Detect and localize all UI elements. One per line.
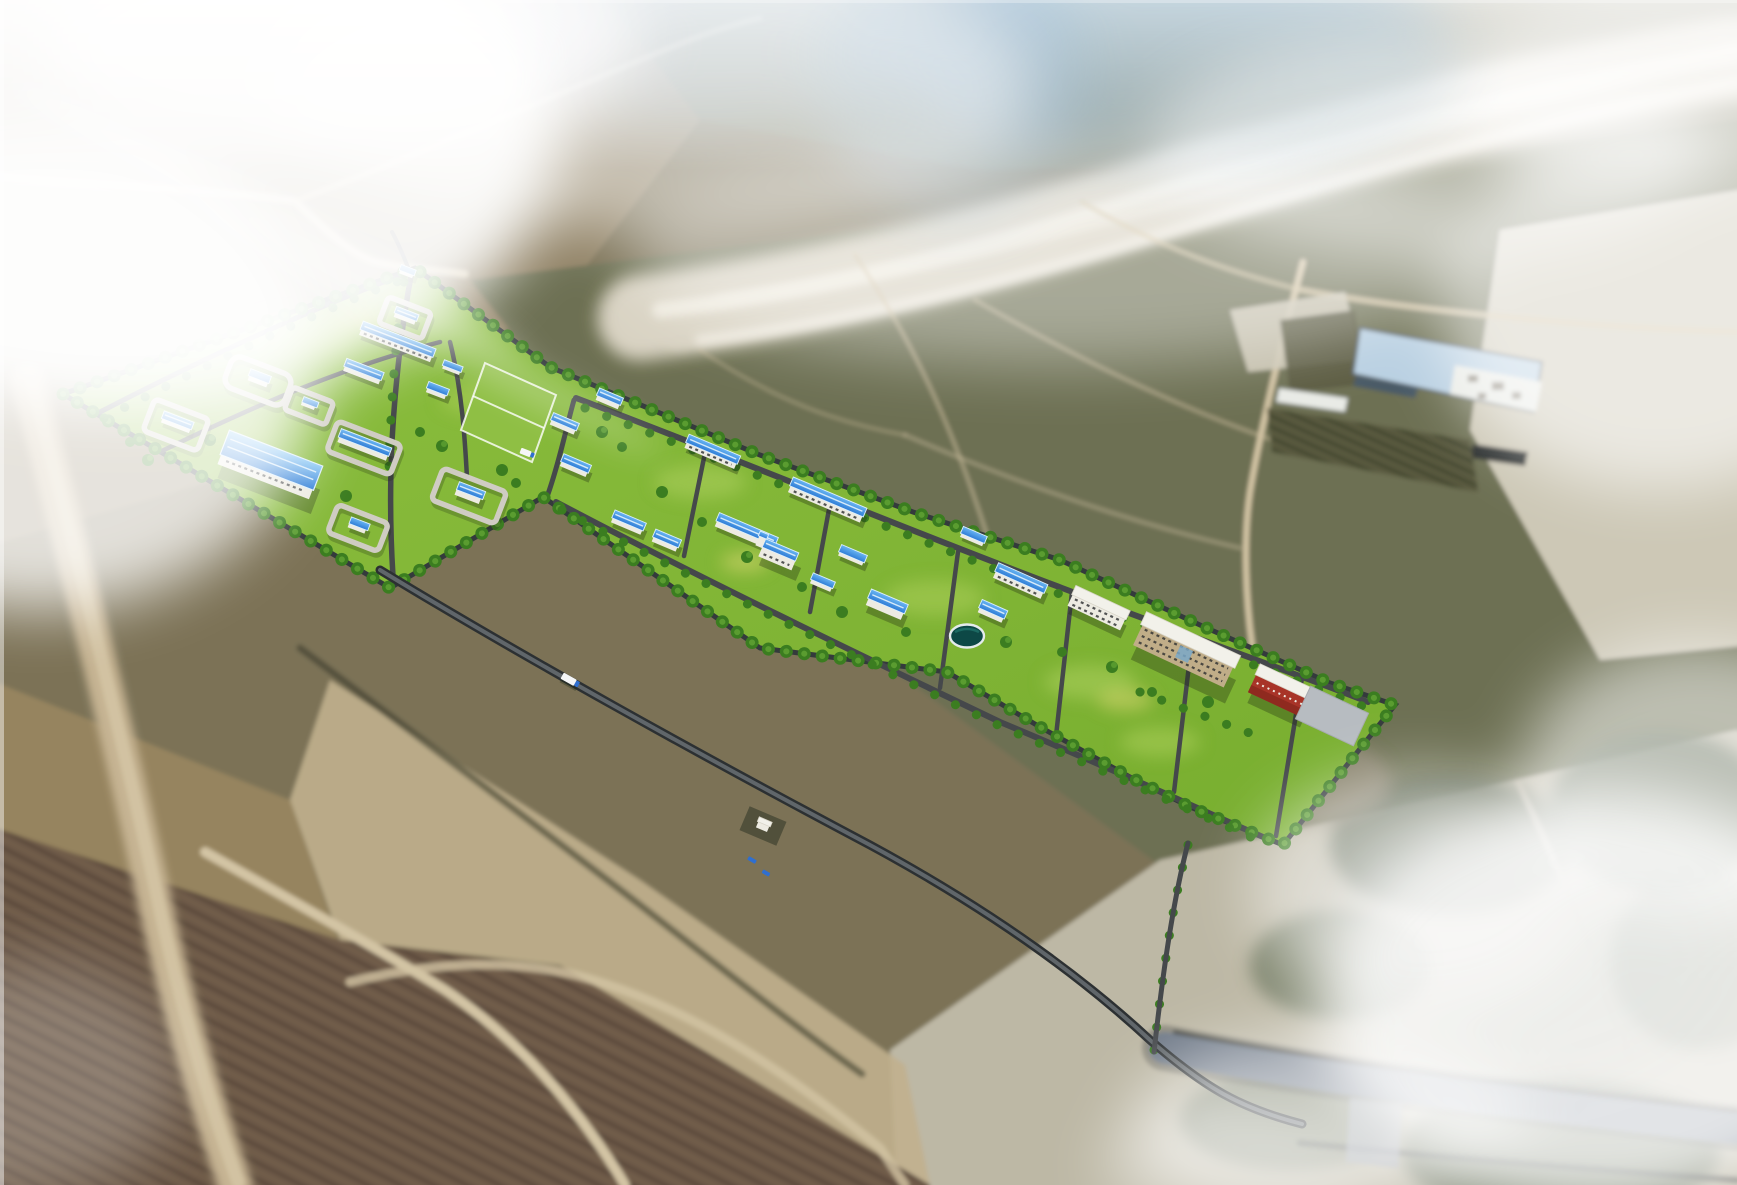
scene-canvas <box>0 0 1737 1185</box>
left-edge-artifact <box>0 0 4 1185</box>
top-edge-artifact <box>0 0 1737 3</box>
aerial-rendering <box>0 0 1737 1185</box>
water-tank-pond <box>950 625 984 648</box>
